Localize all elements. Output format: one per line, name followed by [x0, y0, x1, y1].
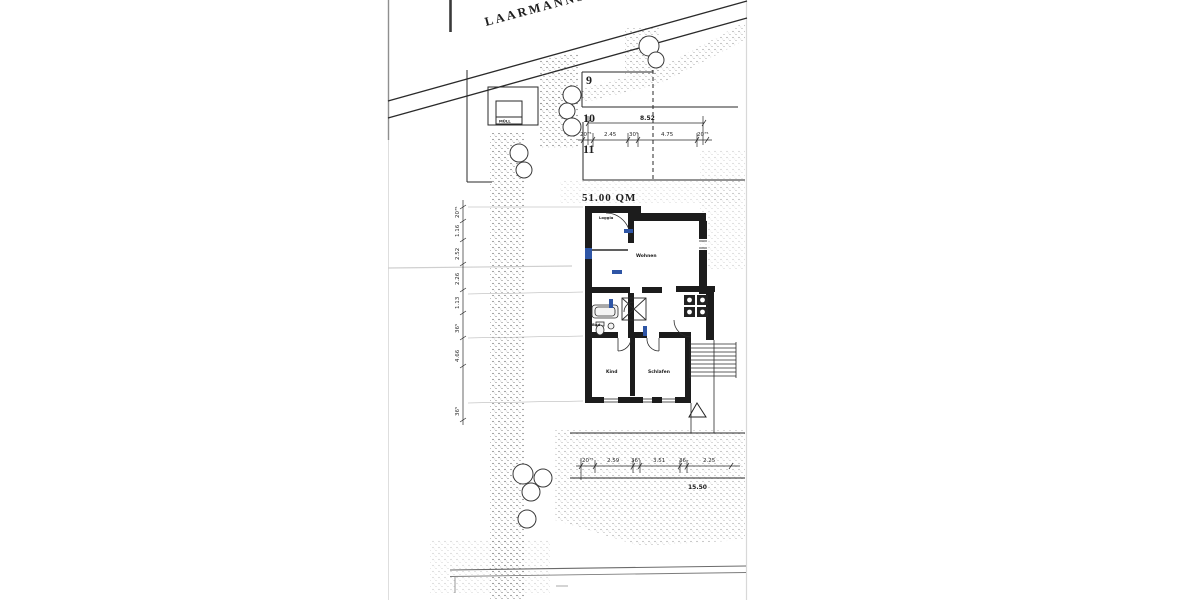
tree — [563, 86, 581, 104]
dim-value: 1.16 — [455, 224, 461, 237]
tree — [559, 103, 575, 119]
dim-value: 20⁷⁵ — [580, 131, 591, 138]
dim-value: 36⁵ — [454, 407, 461, 416]
tree — [510, 144, 528, 162]
dim-value: 4.66 — [455, 349, 461, 362]
garden-stipple — [555, 430, 745, 546]
site-plan-drawing: LAARMANNSTR. MÜLL 9 10 — [0, 0, 1200, 600]
muell-label: MÜLL — [499, 119, 511, 124]
tree — [563, 118, 581, 136]
room-label-wohnen: Wohnen — [636, 253, 657, 259]
tree — [518, 510, 536, 528]
dim-value: 36 — [679, 458, 686, 464]
room-label-bad: Bad — [592, 322, 600, 327]
dim-value: 36⁵ — [631, 457, 640, 464]
area-label: 51.00 QM — [582, 192, 636, 204]
sink — [608, 323, 614, 329]
tree — [513, 464, 533, 484]
tree — [522, 483, 540, 501]
tree — [516, 162, 532, 178]
house-number-9: 9 — [586, 73, 592, 87]
dim-value: 36⁵ — [454, 324, 461, 333]
dim-value: 20⁷⁵ — [582, 457, 593, 464]
dim-value: 2.25 — [703, 458, 716, 464]
room-label-loggia: Loggia — [599, 215, 614, 220]
room-label-kind: Kind — [606, 369, 617, 375]
dim-top-total: 8.52 — [640, 115, 655, 122]
tree — [534, 469, 552, 487]
dim-value: 2.59 — [607, 458, 620, 464]
dim-value: 20⁷⁵ — [697, 131, 708, 138]
dim-value: 20⁷⁵ — [454, 207, 461, 218]
dim-value: 2.45 — [604, 132, 617, 138]
site-plan-scan: LAARMANNSTR. MÜLL 9 10 — [0, 0, 1200, 600]
dim-value: 1.13 — [455, 296, 461, 309]
boundary-stipple-strip — [490, 133, 524, 600]
room-label-schlafen: Schlafen — [648, 369, 670, 375]
dim-value: 2.52 — [455, 248, 461, 260]
dim-value: 4.75 — [661, 132, 674, 138]
tree — [648, 52, 664, 68]
dim-value: 2.26 — [455, 272, 461, 285]
dim-value: 30⁵ — [629, 131, 638, 138]
dim-value: 3.51 — [653, 458, 665, 464]
house-number-11: 11 — [583, 142, 594, 156]
dim-bottom-total: 15.50 — [688, 484, 707, 491]
